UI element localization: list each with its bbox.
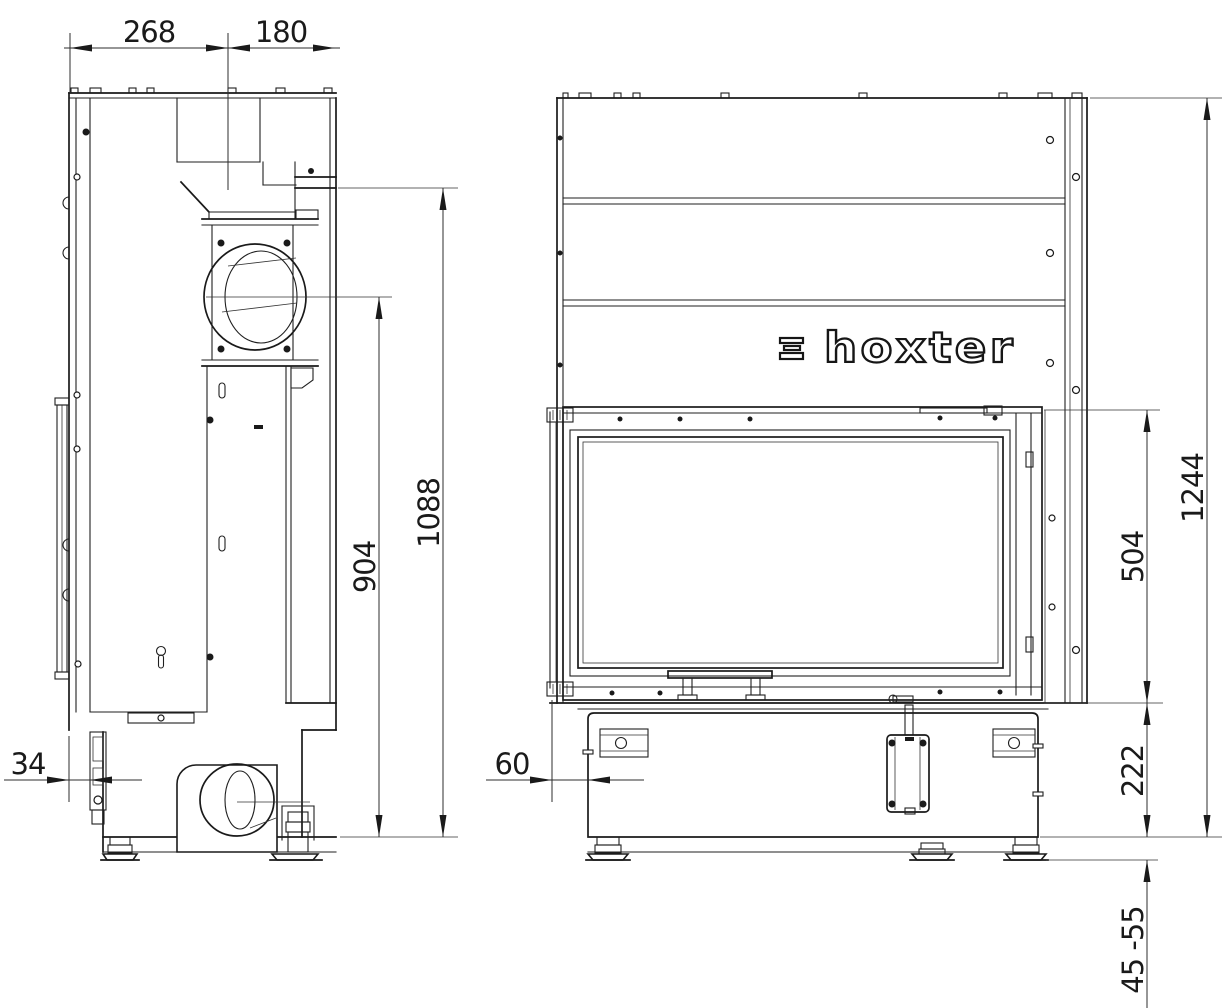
door-glass bbox=[578, 437, 1003, 668]
dimension-180: 180 bbox=[228, 15, 335, 52]
side-rear-rail bbox=[55, 398, 69, 679]
dimension-904-label: 904 bbox=[348, 541, 382, 593]
door-latch bbox=[1026, 637, 1033, 652]
fireplace-technical-drawing: hoxter bbox=[0, 0, 1229, 1008]
dimension-60-label: 60 bbox=[495, 747, 530, 781]
base-bracket-right bbox=[993, 729, 1035, 757]
door-slider-rail bbox=[920, 408, 987, 413]
side-mid-body bbox=[90, 366, 336, 723]
door-latch bbox=[1026, 452, 1033, 467]
dimension-45-55-label: 45 -55 bbox=[1116, 906, 1150, 994]
keyhole bbox=[157, 647, 166, 656]
center-plate bbox=[887, 735, 929, 812]
hoxter-logo: hoxter bbox=[780, 323, 1016, 372]
hoxter-logo-text: hoxter bbox=[824, 323, 1016, 372]
side-top-recess bbox=[177, 98, 336, 219]
dimension-1088: 1088 bbox=[338, 188, 458, 837]
dimension-504: 504 bbox=[1044, 410, 1163, 703]
dimension-1088-label: 1088 bbox=[412, 478, 446, 548]
air-intake-housing bbox=[177, 765, 277, 852]
dimension-1244: 1244 bbox=[1040, 98, 1222, 837]
dimension-180-label: 180 bbox=[255, 15, 307, 49]
screw bbox=[83, 129, 90, 136]
base-bracket-left bbox=[600, 729, 648, 757]
side-base bbox=[90, 730, 336, 852]
side-foot-rear bbox=[101, 837, 139, 860]
dimension-268-label: 268 bbox=[123, 15, 175, 49]
front-base bbox=[550, 695, 1087, 852]
dimension-222: 222 bbox=[1116, 703, 1151, 837]
firebox-door bbox=[547, 406, 1055, 703]
flue-collar bbox=[202, 210, 318, 366]
door-handle-bar bbox=[668, 671, 772, 678]
base-body bbox=[588, 713, 1038, 837]
front-cabinet bbox=[557, 98, 1087, 703]
door-frame bbox=[563, 407, 1042, 700]
dimension-34-label: 34 bbox=[11, 747, 46, 781]
dimension-45-55: 45 -55 bbox=[1046, 860, 1158, 1008]
side-view bbox=[55, 88, 336, 860]
front-foot-right bbox=[1004, 837, 1048, 860]
front-view: hoxter bbox=[547, 93, 1087, 860]
dimension-222-label: 222 bbox=[1116, 745, 1150, 797]
dimension-34: 34 bbox=[4, 736, 142, 802]
dimension-1244-label: 1244 bbox=[1176, 453, 1210, 523]
dimension-504-label: 504 bbox=[1116, 531, 1150, 583]
hoxter-mark-icon bbox=[780, 338, 803, 359]
front-foot-left bbox=[586, 837, 630, 860]
technical-drawing-page: hoxter bbox=[0, 0, 1229, 1008]
